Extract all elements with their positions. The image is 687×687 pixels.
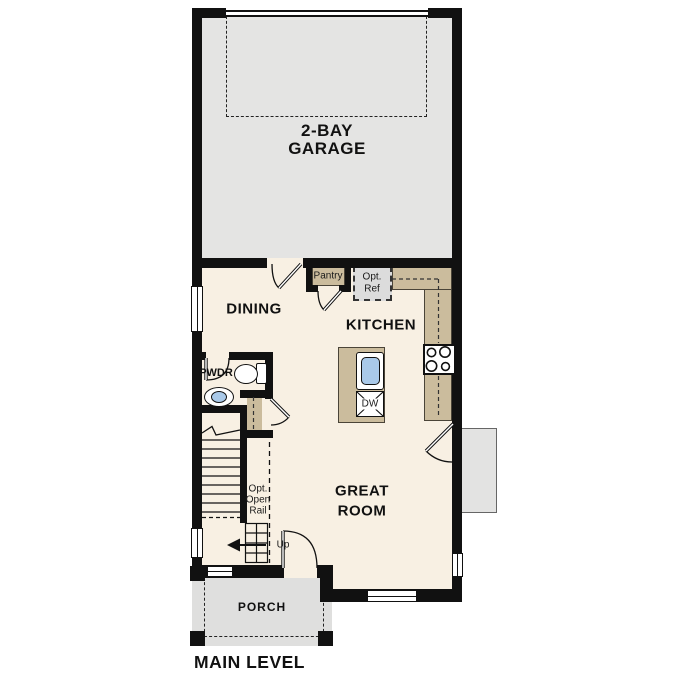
- powder-label: PWDR: [199, 367, 233, 379]
- opt-ref-label-line2: Ref: [364, 284, 380, 295]
- dining-label: DINING: [226, 301, 282, 318]
- plan-linework: [0, 0, 687, 687]
- rail-label-line3: Rail: [249, 506, 266, 517]
- door-pantry: [318, 291, 341, 310]
- stair-break-line: [202, 427, 240, 436]
- floor-plan: 2-BAY GARAGE DINING KITCHEN GREAT ROOM P…: [0, 0, 687, 687]
- opt-ref-label-line1: Opt.: [363, 272, 382, 283]
- garage-label-line2: GARAGE: [288, 139, 366, 159]
- up-label: Up: [277, 540, 290, 551]
- door-garage-to-dining: [272, 264, 301, 288]
- kitchen-label: KITCHEN: [346, 317, 416, 334]
- stair-lower-steps: [246, 524, 268, 563]
- pantry-label: Pantry: [314, 271, 343, 282]
- door-entry-closet: [271, 399, 289, 425]
- rail-label-line2: Open: [246, 495, 270, 506]
- stove-burners-icon: [426, 347, 450, 371]
- greatroom-label-line2: ROOM: [338, 503, 387, 520]
- up-arrow-icon: [227, 539, 266, 552]
- level-title: MAIN LEVEL: [194, 652, 305, 673]
- rail-label-line1: Opt.: [249, 484, 268, 495]
- dishwasher-label: DW: [361, 399, 380, 410]
- door-greatroom-patio: [426, 424, 453, 462]
- stair-treads: [202, 440, 240, 512]
- greatroom-label-line1: GREAT: [335, 483, 389, 500]
- garage-label-line1: 2-BAY: [301, 121, 353, 141]
- porch-label: PORCH: [238, 600, 286, 614]
